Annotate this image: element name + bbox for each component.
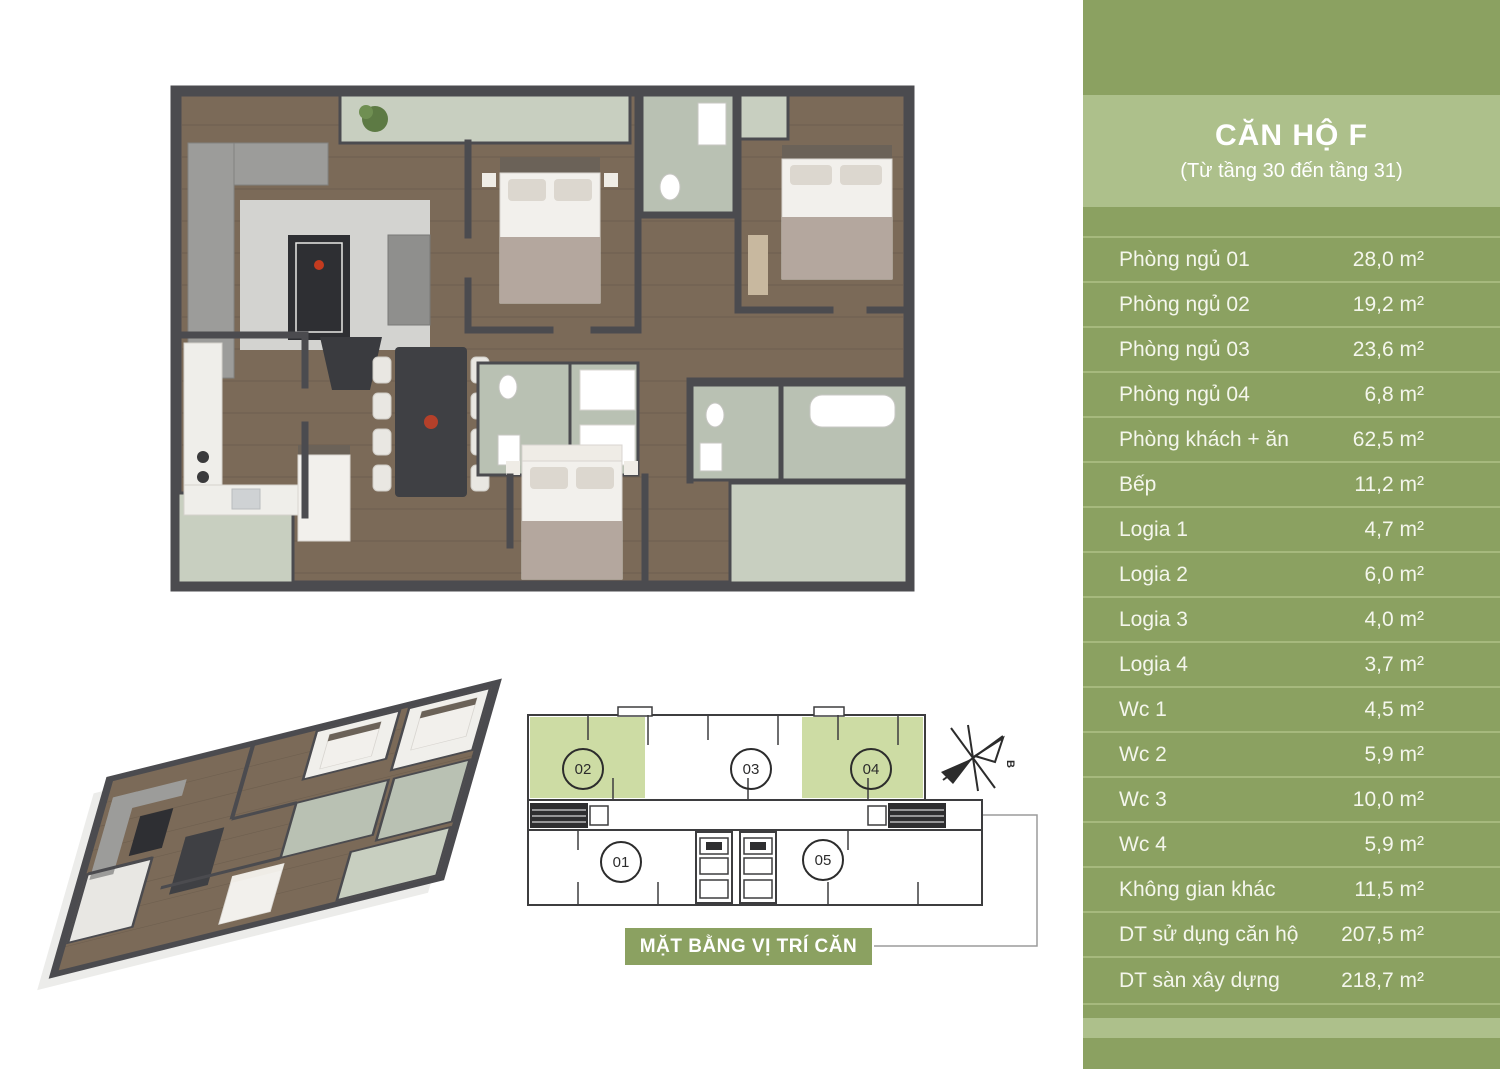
room-label: Logia 4 <box>1119 653 1188 677</box>
room-row: Phòng ngủ 0128,0 m² <box>1083 238 1500 283</box>
room-area: 207,5 m² <box>1341 923 1424 947</box>
unit-number-04: 04 <box>863 761 880 778</box>
room-label: Wc 2 <box>1119 743 1167 767</box>
unit-number-03: 03 <box>743 761 760 778</box>
room-label: Bếp <box>1119 473 1156 497</box>
room-label: Wc 4 <box>1119 833 1167 857</box>
room-area: 10,0 m² <box>1353 788 1424 812</box>
unit-number-02: 02 <box>575 761 592 778</box>
isometric-floorplan-drawing <box>26 672 513 998</box>
room-label: Phòng ngủ 03 <box>1119 338 1250 362</box>
room-area: 11,5 m² <box>1354 878 1424 902</box>
bed-1 <box>500 157 600 173</box>
room-row: Wc 310,0 m² <box>1083 778 1500 823</box>
logia-bottom-right <box>730 483 907 583</box>
room-label: Phòng ngủ 02 <box>1119 293 1250 317</box>
main-floorplan-image <box>170 85 915 592</box>
bed-2 <box>782 145 892 159</box>
room-area: 62,5 m² <box>1353 428 1424 452</box>
room-label: Logia 1 <box>1119 518 1188 542</box>
room-label: Phòng ngủ 04 <box>1119 383 1250 407</box>
room-row: Wc 45,9 m² <box>1083 823 1500 868</box>
room-label: DT sử dụng căn hộ <box>1119 923 1298 947</box>
room-row: Không gian khác11,5 m² <box>1083 868 1500 913</box>
apartment-header: CĂN HỘ F (Từ tầng 30 đến tầng 31) <box>1083 95 1500 207</box>
room-row: Logia 34,0 m² <box>1083 598 1500 643</box>
room-area: 11,2 m² <box>1354 473 1424 497</box>
room-label: Phòng khách + ăn <box>1119 428 1289 452</box>
compass-icon: B <box>941 725 1016 791</box>
tv-console <box>388 235 430 325</box>
room-row: Logia 43,7 m² <box>1083 643 1500 688</box>
room-area: 28,0 m² <box>1353 248 1424 272</box>
desk <box>748 235 768 295</box>
room-row: Bếp11,2 m² <box>1083 463 1500 508</box>
room-area: 4,5 m² <box>1364 698 1424 722</box>
main-floorplan-drawing <box>170 85 915 592</box>
room-row: Phòng ngủ 0323,6 m² <box>1083 328 1500 373</box>
room-row: Wc 14,5 m² <box>1083 688 1500 733</box>
room-label: Không gian khác <box>1119 878 1275 902</box>
location-plan-caption: MẶT BẰNG VỊ TRÍ CĂN HỘ F <box>625 928 872 965</box>
coffee-table <box>288 235 350 340</box>
unit-number-05: 05 <box>815 852 832 869</box>
room-area: 4,0 m² <box>1364 608 1424 632</box>
room-area: 6,0 m² <box>1364 563 1424 587</box>
room-row: Logia 14,7 m² <box>1083 508 1500 553</box>
apartment-floors: (Từ tầng 30 đến tầng 31) <box>1180 160 1402 183</box>
room-area: 19,2 m² <box>1353 293 1424 317</box>
unit-number-01: 01 <box>613 854 630 871</box>
room-row: Phòng ngủ 046,8 m² <box>1083 373 1500 418</box>
room-area: 6,8 m² <box>1364 383 1424 407</box>
apartment-info-panel: CĂN HỘ F (Từ tầng 30 đến tầng 31) Phòng … <box>1083 0 1500 1069</box>
room-row: DT sử dụng căn hộ207,5 m² <box>1083 913 1500 958</box>
sidebar-bottom-band <box>1083 1018 1500 1038</box>
room-area: 3,7 m² <box>1364 653 1424 677</box>
room-row: DT sàn xây dựng218,7 m² <box>1083 958 1500 1003</box>
bathtub <box>810 395 895 427</box>
room-area: 218,7 m² <box>1341 969 1424 993</box>
room-row: Phòng khách + ăn62,5 m² <box>1083 418 1500 463</box>
room-row: Logia 26,0 m² <box>1083 553 1500 598</box>
room-area: 5,9 m² <box>1364 743 1424 767</box>
elevator-core-right <box>868 803 946 828</box>
room-label: Logia 2 <box>1119 563 1188 587</box>
unit-04-area <box>802 717 923 798</box>
compass-north-label: B <box>1004 760 1016 768</box>
isometric-floorplan-image <box>26 672 513 998</box>
room-area: 23,6 m² <box>1353 338 1424 362</box>
room-label: Logia 3 <box>1119 608 1188 632</box>
room-area: 5,9 m² <box>1364 833 1424 857</box>
room-area-table: Phòng ngủ 0128,0 m² Phòng ngủ 0219,2 m² … <box>1083 236 1500 1005</box>
room-row: Phòng ngủ 0219,2 m² <box>1083 283 1500 328</box>
room-label: Phòng ngủ 01 <box>1119 248 1250 272</box>
room-label: DT sàn xây dựng <box>1119 969 1280 993</box>
bed-3 <box>522 445 622 461</box>
room-label: Wc 3 <box>1119 788 1167 812</box>
room-label: Wc 1 <box>1119 698 1167 722</box>
room-area: 4,7 m² <box>1364 518 1424 542</box>
apartment-title: CĂN HỘ F <box>1215 119 1368 154</box>
elevator-core-left <box>530 803 608 828</box>
kitchen-counter <box>184 343 222 508</box>
room-row: Wc 25,9 m² <box>1083 733 1500 778</box>
